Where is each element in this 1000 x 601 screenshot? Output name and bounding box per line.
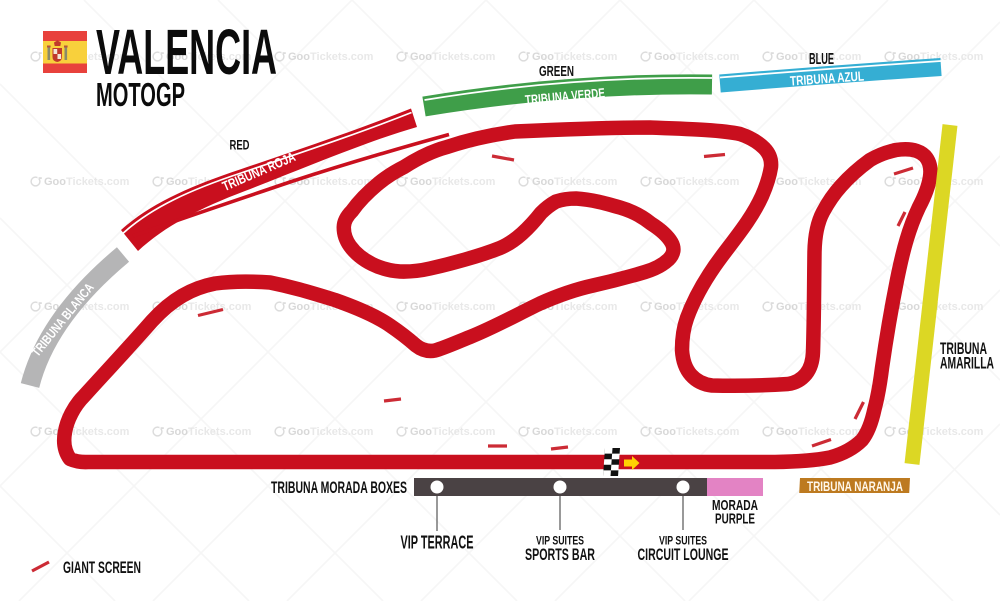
svg-text:VIP TERRACE: VIP TERRACE	[401, 533, 474, 553]
svg-text:RED: RED	[230, 138, 250, 153]
svg-text:GIANT SCREEN: GIANT SCREEN	[63, 558, 141, 577]
svg-text:TRIBUNA NARANJA: TRIBUNA NARANJA	[807, 478, 903, 494]
svg-text:MOTOGP: MOTOGP	[96, 77, 185, 114]
svg-text:GREEN: GREEN	[539, 64, 574, 80]
svg-text:PURPLE: PURPLE	[715, 511, 755, 528]
svg-text:SPORTS BAR: SPORTS BAR	[525, 545, 595, 564]
svg-text:TRIBUNA BLANCA: TRIBUNA BLANCA	[28, 280, 97, 360]
svg-text:BLUE: BLUE	[809, 51, 834, 68]
svg-text:TRIBUNA MORADA BOXES: TRIBUNA MORADA BOXES	[271, 479, 407, 497]
svg-text:AMARILLA: AMARILLA	[940, 355, 994, 373]
svg-text:CIRCUIT LOUNGE: CIRCUIT LOUNGE	[638, 545, 729, 564]
